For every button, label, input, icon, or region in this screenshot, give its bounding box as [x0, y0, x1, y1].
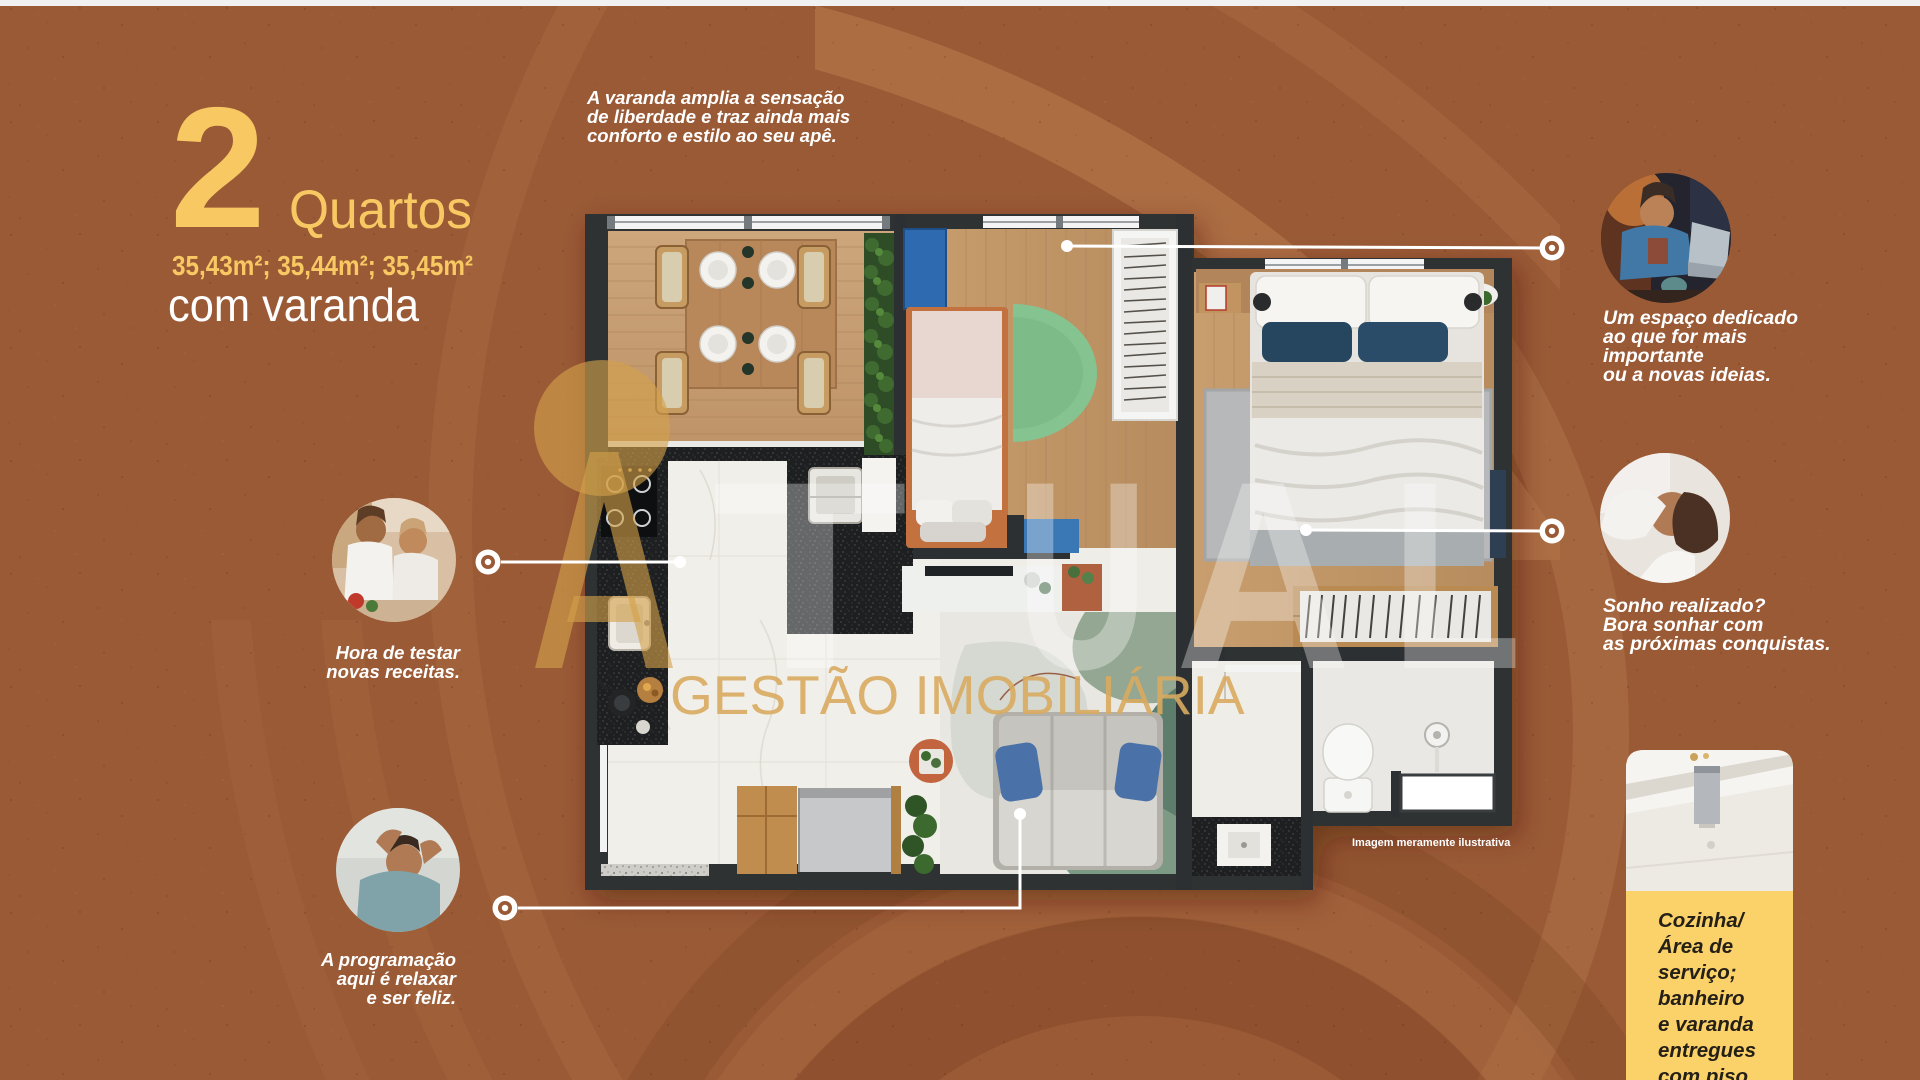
svg-text:aqui é relaxar: aqui é relaxar: [337, 968, 458, 989]
svg-text:Área de: Área de: [1657, 935, 1733, 958]
svg-text:2: 2: [170, 72, 266, 264]
svg-text:conforto e estilo ao seu apê.: conforto e estilo ao seu apê.: [587, 125, 837, 146]
svg-text:Hora de testar: Hora de testar: [336, 642, 462, 663]
svg-text:de liberdade e traz ainda mais: de liberdade e traz ainda mais: [587, 106, 850, 127]
svg-text:35,43m²; 35,44m²; 35,45m²: 35,43m²; 35,44m²; 35,45m²: [172, 250, 473, 281]
svg-text:entregues: entregues: [1658, 1039, 1756, 1062]
svg-text:Imagem meramente ilustrativa: Imagem meramente ilustrativa: [1352, 837, 1511, 849]
svg-text:L: L: [1390, 425, 1522, 725]
svg-text:A programação: A programação: [320, 949, 456, 970]
svg-text:com varanda: com varanda: [168, 279, 419, 331]
svg-text:novas receitas.: novas receitas.: [326, 661, 460, 682]
svg-text:e varanda: e varanda: [1658, 1013, 1754, 1036]
svg-text:serviço;: serviço;: [1658, 961, 1737, 984]
svg-text:com piso.: com piso.: [1658, 1065, 1754, 1080]
svg-text:Quartos: Quartos: [289, 180, 472, 240]
svg-text:e ser feliz.: e ser feliz.: [367, 987, 456, 1008]
svg-text:banheiro: banheiro: [1658, 987, 1745, 1010]
svg-text:GESTÃO IMOBILIÁRIA: GESTÃO IMOBILIÁRIA: [670, 664, 1245, 726]
svg-text:as próximas conquistas.: as próximas conquistas.: [1603, 633, 1831, 655]
svg-text:A varanda amplia a sensação: A varanda amplia a sensação: [586, 87, 844, 108]
svg-text:ou a novas ideias.: ou a novas ideias.: [1603, 364, 1771, 386]
svg-text:Cozinha/: Cozinha/: [1658, 909, 1746, 932]
